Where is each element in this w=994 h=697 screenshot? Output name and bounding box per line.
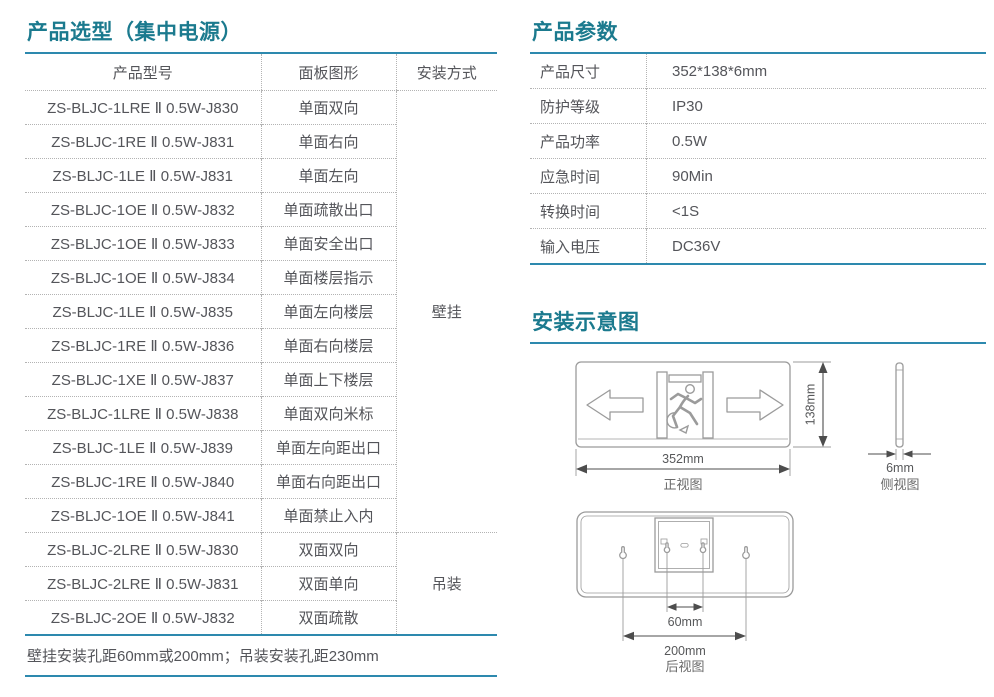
model-cell: ZS-BLJC-1OE Ⅱ 0.5W-J832: [25, 193, 261, 227]
side-view-drawing: 6mm 侧视图: [868, 363, 931, 492]
model-cell: ZS-BLJC-1LE Ⅱ 0.5W-J835: [25, 295, 261, 329]
selection-section: 产品选型（集中电源） 产品型号 面板图形 安装方式 ZS-BLJC-1LRE Ⅱ…: [25, 20, 497, 677]
installation-diagram: 138mm 352mm 正视图: [530, 350, 994, 697]
side-thickness-dimension: 6mm: [868, 449, 931, 475]
front-view-drawing: 138mm 352mm 正视图: [576, 362, 831, 492]
param-label: 防护等级: [530, 89, 647, 124]
panel-cell: 单面上下楼层: [261, 363, 396, 397]
param-label: 产品尺寸: [530, 54, 647, 89]
panel-cell: 单面右向: [261, 125, 396, 159]
side-view-caption: 侧视图: [880, 477, 919, 492]
rear-inner-spacing-label: 60mm: [668, 615, 703, 629]
rear-view-caption: 后视图: [665, 659, 704, 674]
model-cell: ZS-BLJC-2LRE Ⅱ 0.5W-J831: [25, 567, 261, 601]
param-label: 应急时间: [530, 159, 647, 194]
model-cell: ZS-BLJC-2LRE Ⅱ 0.5W-J830: [25, 533, 261, 567]
model-cell: ZS-BLJC-1LE Ⅱ 0.5W-J831: [25, 159, 261, 193]
front-height-dimension: 138mm: [793, 362, 831, 447]
param-row: 产品尺寸 352*138*6mm: [530, 54, 986, 89]
panel-cell: 单面左向距出口: [261, 431, 396, 465]
panel-cell: 单面安全出口: [261, 227, 396, 261]
mount-wall-cell: 壁挂: [396, 91, 497, 533]
model-cell: ZS-BLJC-1XE Ⅱ 0.5W-J837: [25, 363, 261, 397]
panel-cell: 单面右向距出口: [261, 465, 396, 499]
param-value: 352*138*6mm: [647, 54, 987, 89]
model-cell: ZS-BLJC-1RE Ⅱ 0.5W-J840: [25, 465, 261, 499]
front-height-label: 138mm: [804, 384, 818, 426]
param-row: 应急时间 90Min: [530, 159, 986, 194]
right-section: 产品参数 产品尺寸 352*138*6mm 防护等级 IP30 产品功率 0.5…: [530, 20, 986, 697]
model-cell: ZS-BLJC-1RE Ⅱ 0.5W-J836: [25, 329, 261, 363]
param-row: 产品功率 0.5W: [530, 124, 986, 159]
mount-ceiling-cell: 吊装: [396, 533, 497, 636]
param-label: 产品功率: [530, 124, 647, 159]
product-spec-page: 产品选型（集中电源） 产品型号 面板图形 安装方式 ZS-BLJC-1LRE Ⅱ…: [0, 0, 994, 687]
product-row: ZS-BLJC-2LRE Ⅱ 0.5W-J830 双面双向 吊装: [25, 533, 497, 567]
front-width-dimension: 352mm: [576, 449, 790, 476]
rear-outer-spacing-label: 200mm: [664, 644, 706, 658]
product-row: ZS-BLJC-1LRE Ⅱ 0.5W-J830 单面双向 壁挂: [25, 91, 497, 125]
front-width-label: 352mm: [662, 452, 704, 466]
param-row: 防护等级 IP30: [530, 89, 986, 124]
panel-cell: 单面疏散出口: [261, 193, 396, 227]
panel-cell: 单面左向楼层: [261, 295, 396, 329]
param-row: 输入电压 DC36V: [530, 229, 986, 265]
selection-header-row: 产品型号 面板图形 安装方式: [25, 54, 497, 91]
param-label: 转换时间: [530, 194, 647, 229]
selection-title: 产品选型（集中电源）: [25, 20, 497, 54]
panel-cell: 单面禁止入内: [261, 499, 396, 533]
param-row: 转换时间 <1S: [530, 194, 986, 229]
panel-cell: 单面左向: [261, 159, 396, 193]
col-header-panel: 面板图形: [261, 54, 396, 91]
junction-box: [655, 518, 713, 572]
sign-panel-side: [896, 363, 903, 447]
params-title: 产品参数: [530, 20, 986, 54]
model-cell: ZS-BLJC-1LRE Ⅱ 0.5W-J838: [25, 397, 261, 431]
model-cell: ZS-BLJC-1OE Ⅱ 0.5W-J841: [25, 499, 261, 533]
model-cell: ZS-BLJC-1LE Ⅱ 0.5W-J839: [25, 431, 261, 465]
panel-cell: 单面右向楼层: [261, 329, 396, 363]
diagram-title: 安装示意图: [530, 310, 986, 344]
param-value: 90Min: [647, 159, 987, 194]
side-thickness-label: 6mm: [886, 461, 914, 475]
model-cell: ZS-BLJC-1OE Ⅱ 0.5W-J833: [25, 227, 261, 261]
panel-cell: 单面双向: [261, 91, 396, 125]
rear-view-drawing: 60mm 200mm 后视图: [577, 512, 793, 674]
param-value: DC36V: [647, 229, 987, 265]
param-value: 0.5W: [647, 124, 987, 159]
model-cell: ZS-BLJC-1RE Ⅱ 0.5W-J831: [25, 125, 261, 159]
col-header-model: 产品型号: [25, 54, 261, 91]
mount-footnote: 壁挂安装孔距60mm或200mm；吊装安装孔距230mm: [25, 635, 497, 676]
param-label: 输入电压: [530, 229, 647, 265]
panel-cell: 双面单向: [261, 567, 396, 601]
front-view-caption: 正视图: [663, 477, 702, 492]
panel-cell: 单面双向米标: [261, 397, 396, 431]
model-cell: ZS-BLJC-1LRE Ⅱ 0.5W-J830: [25, 91, 261, 125]
panel-cell: 双面疏散: [261, 601, 396, 636]
footnote-row: 壁挂安装孔距60mm或200mm；吊装安装孔距230mm: [25, 635, 497, 676]
param-value: IP30: [647, 89, 987, 124]
selection-table: 产品型号 面板图形 安装方式 ZS-BLJC-1LRE Ⅱ 0.5W-J830 …: [25, 54, 497, 677]
panel-cell: 双面双向: [261, 533, 396, 567]
param-value: <1S: [647, 194, 987, 229]
panel-cell: 单面楼层指示: [261, 261, 396, 295]
params-table: 产品尺寸 352*138*6mm 防护等级 IP30 产品功率 0.5W 应急时…: [530, 54, 986, 265]
model-cell: ZS-BLJC-1OE Ⅱ 0.5W-J834: [25, 261, 261, 295]
model-cell: ZS-BLJC-2OE Ⅱ 0.5W-J832: [25, 601, 261, 636]
col-header-mount: 安装方式: [396, 54, 497, 91]
